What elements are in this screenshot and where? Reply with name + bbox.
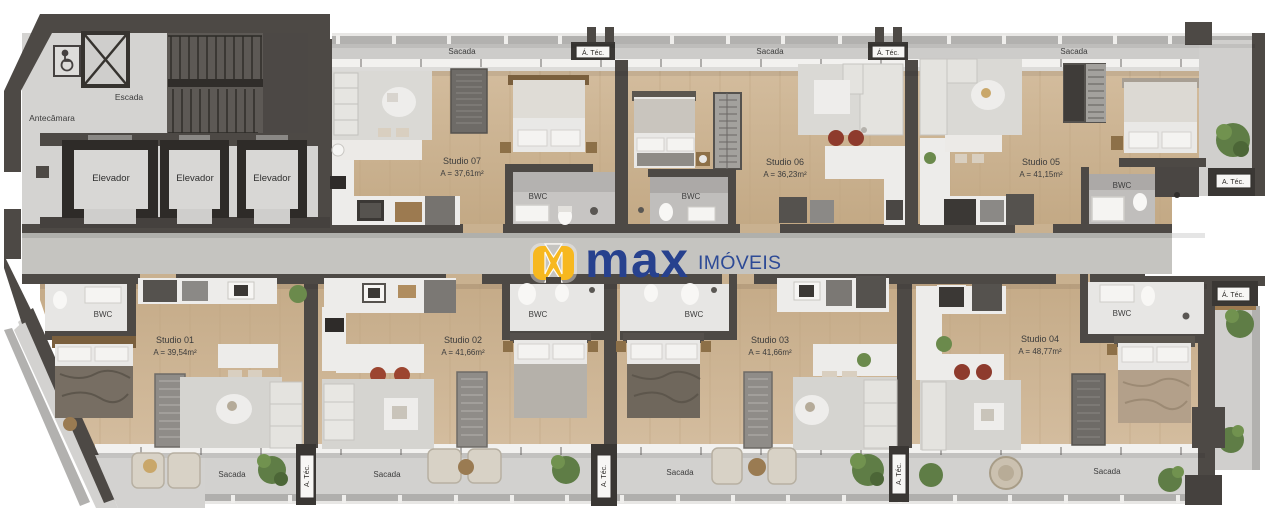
svg-text:Á. Téc.: Á. Téc. xyxy=(1222,290,1244,299)
svg-text:BWC: BWC xyxy=(529,310,548,319)
svg-text:A = 39,54m²: A = 39,54m² xyxy=(153,348,197,357)
svg-text:BWC: BWC xyxy=(1113,181,1132,190)
svg-text:Studio 05: Studio 05 xyxy=(1022,157,1060,167)
svg-text:Sacada: Sacada xyxy=(756,47,784,56)
svg-text:BWC: BWC xyxy=(94,310,113,319)
svg-text:A = 37,61m²: A = 37,61m² xyxy=(440,169,484,178)
svg-text:BWC: BWC xyxy=(685,310,704,319)
svg-text:A. Téc.: A. Téc. xyxy=(304,465,311,487)
svg-text:IMÓVEIS: IMÓVEIS xyxy=(698,251,781,274)
svg-text:Á. Téc.: Á. Téc. xyxy=(582,48,604,57)
svg-text:Á. Téc.: Á. Téc. xyxy=(877,48,899,57)
svg-text:Studio 06: Studio 06 xyxy=(766,157,804,167)
svg-text:Studio 03: Studio 03 xyxy=(751,335,789,345)
svg-text:Elevador: Elevador xyxy=(176,173,214,184)
svg-text:Elevador: Elevador xyxy=(92,173,130,184)
svg-text:Elevador: Elevador xyxy=(253,173,291,184)
svg-text:A = 41,66m²: A = 41,66m² xyxy=(441,348,485,357)
svg-text:A = 48,77m²: A = 48,77m² xyxy=(1018,347,1062,356)
svg-text:max: max xyxy=(585,232,690,288)
svg-text:Studio 01: Studio 01 xyxy=(156,335,194,345)
svg-text:Escada: Escada xyxy=(115,92,144,102)
svg-text:Sacada: Sacada xyxy=(1060,47,1088,56)
svg-text:Sacada: Sacada xyxy=(373,470,401,479)
svg-text:A = 36,23m²: A = 36,23m² xyxy=(763,170,807,179)
svg-text:Sacada: Sacada xyxy=(666,468,694,477)
svg-text:BWC: BWC xyxy=(682,192,701,201)
svg-text:Studio 07: Studio 07 xyxy=(443,156,481,166)
svg-text:Antecâmara: Antecâmara xyxy=(29,113,75,123)
svg-text:A. Téc.: A. Téc. xyxy=(1222,179,1244,186)
svg-text:BWC: BWC xyxy=(1113,309,1132,318)
svg-text:BWC: BWC xyxy=(529,192,548,201)
svg-text:A. Téc.: A. Téc. xyxy=(896,463,903,485)
svg-text:Sacada: Sacada xyxy=(218,470,246,479)
svg-text:Sacada: Sacada xyxy=(448,47,476,56)
svg-text:Studio 02: Studio 02 xyxy=(444,335,482,345)
svg-text:A = 41,15m²: A = 41,15m² xyxy=(1019,170,1063,179)
svg-text:A = 41,66m²: A = 41,66m² xyxy=(748,348,792,357)
svg-text:Studio 04: Studio 04 xyxy=(1021,334,1059,344)
svg-text:A. Téc.: A. Téc. xyxy=(601,465,608,487)
svg-text:Sacada: Sacada xyxy=(1093,467,1121,476)
